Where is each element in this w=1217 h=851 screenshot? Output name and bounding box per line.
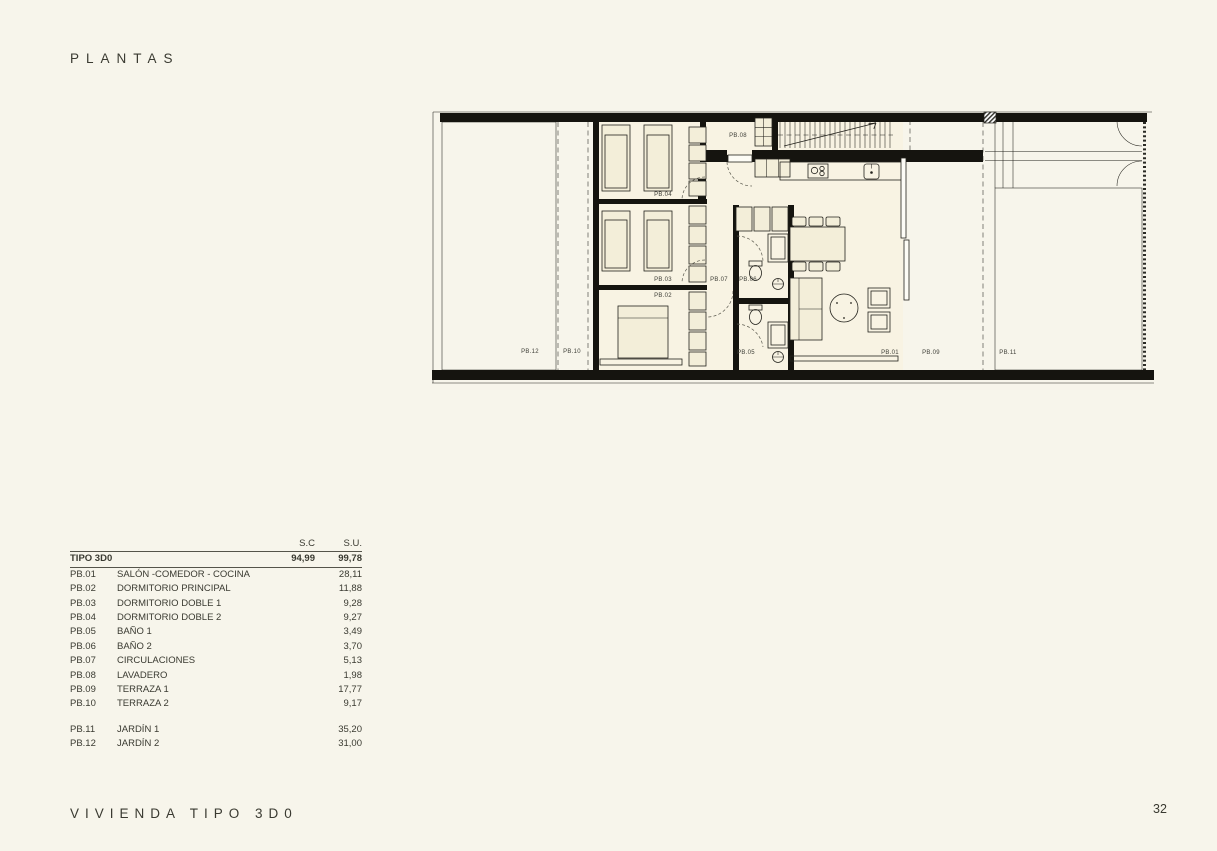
dining-table <box>790 227 845 261</box>
room-code: PB.07 <box>70 654 117 668</box>
chair <box>792 217 806 226</box>
total-sc: 94,99 <box>270 552 315 567</box>
room-sc <box>270 737 315 751</box>
double-bed <box>618 306 668 358</box>
room-sc <box>270 669 315 683</box>
room-su: 35,20 <box>315 723 362 737</box>
structural-column <box>984 112 996 123</box>
room-name: BAÑO 2 <box>117 640 270 654</box>
table-row: PB.06 BAÑO 2 3,70 <box>70 640 362 654</box>
column-header-sc: S.C <box>270 537 315 552</box>
garden-jardin-1 <box>995 188 1142 370</box>
room-su: 28,11 <box>315 567 362 582</box>
plan-label-pb06: PB.06 <box>739 277 757 283</box>
room-code: PB.06 <box>70 640 117 654</box>
room-name: TERRAZA 2 <box>117 697 270 711</box>
page-title: PLANTAS <box>70 51 180 66</box>
top-wall <box>440 113 1147 122</box>
room-su: 9,28 <box>315 597 362 611</box>
table-row: PB.03 DORMITORIO DOBLE 1 9,28 <box>70 597 362 611</box>
room-su: 9,17 <box>315 697 362 711</box>
bottom-wall <box>432 370 1154 380</box>
room-name: JARDÍN 1 <box>117 723 270 737</box>
table-row: PB.12 JARDÍN 2 31,00 <box>70 737 362 751</box>
gate-door <box>1117 121 1142 146</box>
room-sc <box>270 611 315 625</box>
chair <box>826 262 840 271</box>
room-code: PB.12 <box>70 737 117 751</box>
room-sc <box>270 723 315 737</box>
table-header-row: S.C S.U. <box>70 537 362 552</box>
bedroom-west-wall <box>593 122 599 370</box>
total-su: 99,78 <box>315 552 362 567</box>
table-row: PB.01 SALÓN -COMEDOR - COCINA 28,11 <box>70 567 362 582</box>
plan-label-pb08: PB.08 <box>729 133 747 139</box>
room-name: DORMITORIO PRINCIPAL <box>117 582 270 596</box>
gate-door <box>1117 161 1142 186</box>
table-row: PB.07 CIRCULACIONES 5,13 <box>70 654 362 668</box>
room-su: 11,88 <box>315 582 362 596</box>
room-name: JARDÍN 2 <box>117 737 270 751</box>
entrance-walkway <box>985 121 1145 370</box>
table-row: PB.10 TERRAZA 2 9,17 <box>70 697 362 711</box>
plan-label-pb05: PB.05 <box>737 350 755 356</box>
room-sc <box>270 625 315 639</box>
room-sc <box>270 597 315 611</box>
room-su: 31,00 <box>315 737 362 751</box>
room-name: BAÑO 1 <box>117 625 270 639</box>
garden-jardin-2 <box>442 122 556 370</box>
terraza-2 <box>558 122 588 370</box>
room-name: SALÓN -COMEDOR - COCINA <box>117 567 270 582</box>
chair <box>826 217 840 226</box>
plan-label-pb10: PB.10 <box>563 349 581 355</box>
room-code: PB.05 <box>70 625 117 639</box>
room-sc <box>270 567 315 582</box>
plan-label-pb02: PB.02 <box>654 293 672 299</box>
table-row: PB.08 LAVADERO 1,98 <box>70 669 362 683</box>
plan-label-pb11: PB.11 <box>999 350 1017 356</box>
room-code: PB.02 <box>70 582 117 596</box>
area-table: S.C S.U. TIPO 3D0 94,99 99,78 PB.01 SALÓ… <box>70 537 362 752</box>
room-code: PB.11 <box>70 723 117 737</box>
chair <box>809 217 823 226</box>
room-su: 17,77 <box>315 683 362 697</box>
brochure-page: PLANTAS <box>0 0 1217 851</box>
room-name: LAVADERO <box>117 669 270 683</box>
table-summary-row: TIPO 3D0 94,99 99,78 <box>70 552 362 567</box>
chair <box>809 262 823 271</box>
plan-label-pb03: PB.03 <box>654 277 672 283</box>
table-row: PB.05 BAÑO 1 3,49 <box>70 625 362 639</box>
plan-label-pb12: PB.12 <box>521 349 539 355</box>
column-header-su: S.U. <box>315 537 362 552</box>
room-su: 5,13 <box>315 654 362 668</box>
wall-pb06-pb05 <box>733 298 790 304</box>
room-code: PB.08 <box>70 669 117 683</box>
type-label: TIPO 3D0 <box>70 552 270 567</box>
room-sc <box>270 697 315 711</box>
room-name: CIRCULACIONES <box>117 654 270 668</box>
room-code: PB.04 <box>70 611 117 625</box>
table-spacer <box>70 712 362 723</box>
room-sc <box>270 683 315 697</box>
room-code: PB.10 <box>70 697 117 711</box>
wardrobes <box>689 127 706 366</box>
plan-label-pb04: PB.04 <box>654 192 672 198</box>
plan-label-pb09: PB.09 <box>922 350 940 356</box>
page-number: 32 <box>1153 802 1167 816</box>
room-name: TERRAZA 1 <box>117 683 270 697</box>
room-su: 3,70 <box>315 640 362 654</box>
room-code: PB.03 <box>70 597 117 611</box>
table-row: PB.09 TERRAZA 1 17,77 <box>70 683 362 697</box>
table-body-outdoor: PB.11 JARDÍN 1 35,20 PB.12 JARDÍN 2 31,0… <box>70 723 362 752</box>
room-su: 3,49 <box>315 625 362 639</box>
room-code: PB.01 <box>70 567 117 582</box>
room-sc <box>270 582 315 596</box>
bath-storage-row <box>736 207 788 231</box>
room-name: DORMITORIO DOBLE 1 <box>117 597 270 611</box>
room-sc <box>270 640 315 654</box>
dining-area <box>790 217 845 271</box>
plan-label-pb01: PB.01 <box>881 350 899 356</box>
room-sc <box>270 654 315 668</box>
plan-label-pb07: PB.07 <box>710 277 728 283</box>
chair <box>792 262 806 271</box>
table-row: PB.02 DORMITORIO PRINCIPAL 11,88 <box>70 582 362 596</box>
room-code: PB.09 <box>70 683 117 697</box>
floor-plan: PB.12 PB.10 PB.04 PB.03 PB.02 PB.07 PB.0… <box>430 106 1154 386</box>
table-row: PB.04 DORMITORIO DOBLE 2 9,27 <box>70 611 362 625</box>
wall-pb03-pb02 <box>593 285 707 290</box>
room-name: DORMITORIO DOBLE 2 <box>117 611 270 625</box>
room-su: 1,98 <box>315 669 362 683</box>
room-su: 9,27 <box>315 611 362 625</box>
table-row: PB.11 JARDÍN 1 35,20 <box>70 723 362 737</box>
footer-title: VIVIENDA TIPO 3D0 <box>70 806 298 821</box>
table-body-interior: PB.01 SALÓN -COMEDOR - COCINA 28,11 PB.0… <box>70 567 362 712</box>
wall-pb04-pb03 <box>593 199 707 204</box>
